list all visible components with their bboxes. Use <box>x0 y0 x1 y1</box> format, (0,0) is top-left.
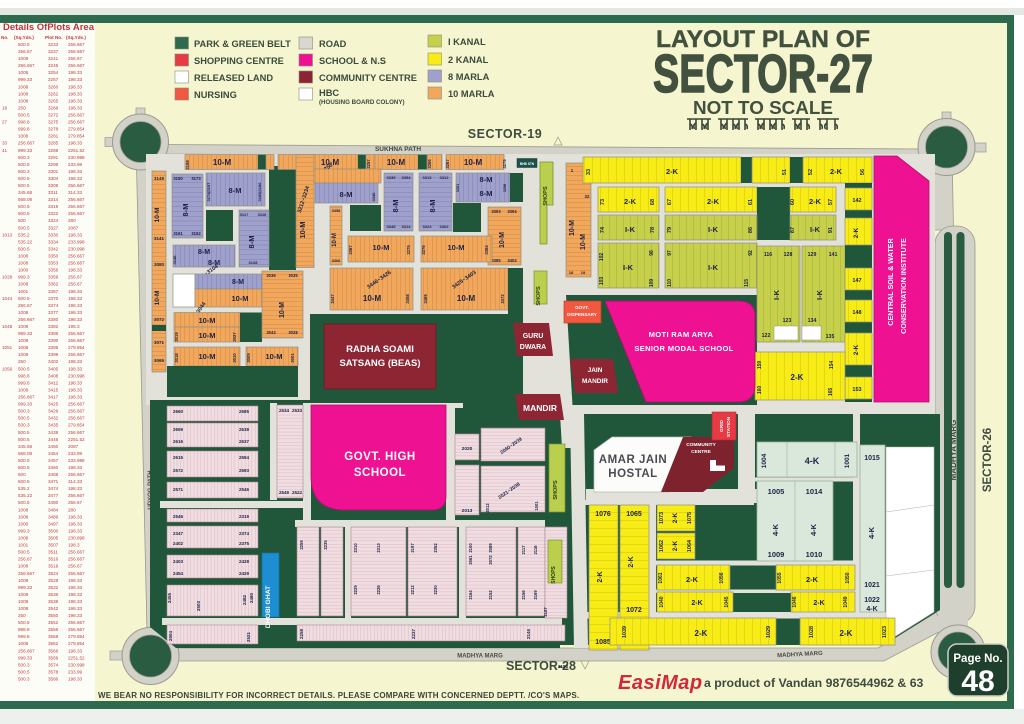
svg-text:10-M: 10-M <box>198 352 215 361</box>
svg-text:110: 110 <box>667 279 673 287</box>
svg-text:1039: 1039 <box>622 626 628 638</box>
svg-text:1076: 1076 <box>595 511 611 518</box>
svg-text:2455: 2455 <box>167 592 172 603</box>
svg-text:GOVT.: GOVT. <box>575 305 589 310</box>
svg-text:2100: 2100 <box>468 543 473 553</box>
svg-text:2482: 2482 <box>242 594 247 605</box>
svg-text:2117: 2117 <box>521 545 526 555</box>
svg-text:HBC: HBC <box>319 88 339 98</box>
svg-text:2-K: 2-K <box>791 373 804 382</box>
svg-text:74: 74 <box>600 226 606 233</box>
svg-text:2 KANAL: 2 KANAL <box>448 55 489 65</box>
svg-text:10-M: 10-M <box>372 243 389 252</box>
svg-text:1021: 1021 <box>864 582 880 589</box>
svg-text:2533: 2533 <box>292 408 303 413</box>
svg-text:3035: 3035 <box>288 273 298 278</box>
svg-text:3146: 3146 <box>172 255 177 265</box>
svg-text:1073: 1073 <box>659 512 665 524</box>
svg-text:COMMUNITY: COMMUNITY <box>686 442 716 448</box>
svg-text:87: 87 <box>790 227 796 233</box>
svg-text:2012: 2012 <box>485 503 490 513</box>
svg-text:MADHYA MARG: MADHYA MARG <box>949 420 958 481</box>
svg-text:2212: 2212 <box>410 585 415 595</box>
svg-text:8-M: 8-M <box>232 279 244 286</box>
svg-text:NOT TO SCALE: NOT TO SCALE <box>693 98 833 118</box>
svg-text:3345: 3345 <box>387 224 397 229</box>
svg-text:3162: 3162 <box>191 231 201 236</box>
svg-text:3358: 3358 <box>332 209 340 213</box>
svg-text:1040: 1040 <box>659 596 665 607</box>
svg-text:3027: 3027 <box>232 332 237 342</box>
svg-text:2313: 2313 <box>376 543 381 553</box>
svg-text:1072: 1072 <box>626 607 642 614</box>
svg-text:I-K: I-K <box>625 225 636 234</box>
svg-text:2403: 2403 <box>173 559 184 564</box>
svg-text:1001: 1001 <box>844 453 851 468</box>
svg-text:2546: 2546 <box>239 487 250 492</box>
svg-text:3458: 3458 <box>405 294 410 304</box>
svg-text:3065: 3065 <box>154 358 165 363</box>
svg-text:3298: 3298 <box>503 184 507 192</box>
svg-text:3080: 3080 <box>154 262 165 267</box>
svg-text:I KANAL: I KANAL <box>448 37 486 47</box>
svg-text:3312: 3312 <box>440 175 450 180</box>
svg-text:18: 18 <box>569 270 574 275</box>
svg-text:159: 159 <box>757 361 763 370</box>
svg-text:1010: 1010 <box>806 550 823 559</box>
svg-text:8-M: 8-M <box>181 204 190 217</box>
svg-text:WE BEAR NO RESPONSIBILITY FOR: WE BEAR NO RESPONSIBILITY FOR INCORRECT … <box>98 691 579 700</box>
svg-text:2504: 2504 <box>168 630 173 641</box>
svg-text:2310: 2310 <box>353 543 358 553</box>
svg-text:2237: 2237 <box>411 628 416 639</box>
svg-text:3266: 3266 <box>427 159 432 169</box>
svg-text:2-K: 2-K <box>624 197 637 206</box>
svg-text:3128: 3128 <box>249 260 259 265</box>
svg-text:2594: 2594 <box>239 455 250 460</box>
svg-text:3036: 3036 <box>266 273 276 278</box>
svg-text:DISPENSARY: DISPENSARY <box>567 312 597 317</box>
svg-text:60: 60 <box>790 199 796 205</box>
svg-text:SHOPS: SHOPS <box>553 480 559 500</box>
svg-text:10-M: 10-M <box>154 208 161 223</box>
svg-text:2169: 2169 <box>533 590 538 600</box>
svg-text:2659: 2659 <box>173 427 184 432</box>
svg-text:10-M: 10-M <box>298 221 307 238</box>
svg-text:73: 73 <box>600 199 606 205</box>
svg-text:2226: 2226 <box>376 585 381 595</box>
svg-text:10-M: 10-M <box>198 331 215 340</box>
svg-text:GRID: GRID <box>719 419 725 432</box>
svg-text:SCHOOL & N.S: SCHOOL & N.S <box>319 56 386 66</box>
svg-text:3009: 3009 <box>246 353 251 363</box>
svg-text:10-M: 10-M <box>387 158 406 167</box>
svg-text:3010: 3010 <box>232 353 237 363</box>
svg-text:3314: 3314 <box>402 224 412 229</box>
svg-text:I-K: I-K <box>810 225 821 234</box>
svg-text:8-M: 8-M <box>391 200 400 213</box>
svg-text:10-M: 10-M <box>279 302 286 318</box>
svg-text:8-M: 8-M <box>198 249 210 256</box>
svg-text:103: 103 <box>599 277 605 286</box>
svg-text:147: 147 <box>852 278 861 284</box>
svg-text:3393: 3393 <box>491 209 501 214</box>
svg-text:3018: 3018 <box>174 353 179 363</box>
svg-text:102: 102 <box>599 253 605 262</box>
svg-text:128: 128 <box>784 252 793 258</box>
svg-text:115: 115 <box>744 279 750 287</box>
svg-text:3323: 3323 <box>423 224 433 229</box>
svg-text:10-M: 10-M <box>457 294 476 303</box>
svg-text:3335: 3335 <box>387 175 397 180</box>
svg-text:3472: 3472 <box>500 294 505 304</box>
svg-text:2480: 2480 <box>249 592 254 603</box>
svg-text:1022: 1022 <box>864 597 880 604</box>
svg-text:(HOUSING BOARD COLONY): (HOUSING BOARD COLONY) <box>319 99 405 106</box>
svg-text:3019: 3019 <box>174 332 179 342</box>
svg-text:109: 109 <box>649 279 655 288</box>
svg-text:129: 129 <box>808 252 817 258</box>
svg-text:8-M: 8-M <box>480 189 493 198</box>
svg-text:3367: 3367 <box>348 245 353 255</box>
svg-text:33: 33 <box>586 169 592 175</box>
svg-text:SATSANG (BEAS): SATSANG (BEAS) <box>339 358 420 369</box>
svg-text:3072: 3072 <box>154 317 165 322</box>
svg-text:2685: 2685 <box>239 409 250 414</box>
svg-text:3354: 3354 <box>402 175 412 180</box>
svg-text:78: 78 <box>650 227 656 233</box>
svg-text:ROAD: ROAD <box>319 39 347 49</box>
svg-text:2-K: 2-K <box>628 556 635 567</box>
svg-text:98: 98 <box>649 250 655 256</box>
svg-text:CONSERVATION INSTITUTE: CONSERVATION INSTITUTE <box>899 238 908 334</box>
svg-text:2-K: 2-K <box>809 197 822 206</box>
svg-text:2197: 2197 <box>410 543 415 553</box>
svg-text:3141: 3141 <box>154 236 165 241</box>
svg-text:2229: 2229 <box>353 585 358 595</box>
svg-text:RELEASED LAND: RELEASED LAND <box>194 73 273 83</box>
svg-text:10-M: 10-M <box>213 158 232 167</box>
svg-text:67: 67 <box>667 199 673 205</box>
svg-text:1062: 1062 <box>659 540 665 552</box>
svg-text:2-K: 2-K <box>853 227 860 238</box>
svg-text:Details OfPlots Area: Details OfPlots Area <box>3 22 95 33</box>
svg-text:I-K: I-K <box>623 263 634 272</box>
svg-text:97: 97 <box>667 250 673 256</box>
svg-text:1075: 1075 <box>687 512 693 524</box>
svg-text:JAIN: JAIN <box>588 367 603 374</box>
svg-text:2152: 2152 <box>488 590 493 600</box>
svg-text:GURU: GURU <box>523 333 544 340</box>
svg-text:2352: 2352 <box>433 543 438 553</box>
svg-text:3028: 3028 <box>288 330 298 335</box>
svg-text:122: 122 <box>762 333 771 339</box>
svg-text:I-K: I-K <box>708 225 719 234</box>
svg-text:I-K: I-K <box>708 263 719 272</box>
svg-text:2454: 2454 <box>173 571 184 576</box>
svg-text:3161: 3161 <box>173 231 183 236</box>
svg-text:1014: 1014 <box>806 487 824 496</box>
svg-text:3001: 3001 <box>290 353 295 363</box>
svg-text:EasiMap: EasiMap <box>618 672 703 694</box>
svg-text:STATION: STATION <box>726 416 732 437</box>
svg-text:8-M: 8-M <box>340 190 353 199</box>
svg-text:10-M: 10-M <box>569 220 576 236</box>
svg-text:SCHOOL: SCHOOL <box>354 467 406 479</box>
svg-text:1015: 1015 <box>864 455 880 462</box>
svg-text:10-M: 10-M <box>580 234 587 250</box>
svg-text:2374: 2374 <box>239 531 250 536</box>
svg-text:Page No.: Page No. <box>953 653 1002 665</box>
svg-text:SUKHNA PATH: SUKHNA PATH <box>375 146 421 153</box>
svg-text:3174|3197: 3174|3197 <box>206 182 211 202</box>
svg-text:3257: 3257 <box>366 159 371 169</box>
svg-text:141: 141 <box>829 252 838 258</box>
svg-text:1049: 1049 <box>843 596 849 607</box>
svg-text:SHOPS: SHOPS <box>551 566 557 584</box>
svg-text:148: 148 <box>852 310 861 316</box>
svg-text:8-M: 8-M <box>480 175 493 184</box>
svg-text:BHB STN: BHB STN <box>520 162 535 166</box>
svg-text:3185|3186: 3185|3186 <box>257 182 262 202</box>
svg-text:SENIOR MODAL SCHOOL: SENIOR MODAL SCHOOL <box>634 344 733 353</box>
svg-text:2615: 2615 <box>173 455 184 460</box>
svg-text:2637: 2637 <box>239 439 250 444</box>
svg-text:116: 116 <box>764 252 772 258</box>
svg-text:10-M: 10-M <box>198 316 215 325</box>
svg-text:SHOPS: SHOPS <box>536 286 542 306</box>
svg-text:2571: 2571 <box>173 487 184 492</box>
svg-text:3117: 3117 <box>240 212 249 217</box>
svg-text:19: 19 <box>581 270 586 275</box>
svg-text:3385: 3385 <box>491 258 501 263</box>
svg-text:1061: 1061 <box>658 572 664 583</box>
svg-text:3301: 3301 <box>456 184 460 192</box>
svg-text:4-K: 4-K <box>809 523 818 536</box>
svg-text:COMMUNITY CENTRE: COMMUNITY CENTRE <box>319 73 417 83</box>
svg-text:2188: 2188 <box>558 664 569 669</box>
svg-text:2429: 2429 <box>239 571 250 576</box>
svg-text:10-M: 10-M <box>499 232 506 248</box>
svg-text:2146: 2146 <box>526 628 531 639</box>
svg-text:3313: 3313 <box>423 175 433 180</box>
svg-text:SECTOR-27: SECTOR-27 <box>653 44 873 104</box>
svg-text:79: 79 <box>667 227 673 233</box>
svg-text:2276: 2276 <box>421 245 426 255</box>
svg-text:2347: 2347 <box>173 531 184 536</box>
svg-text:2402: 2402 <box>173 541 184 546</box>
svg-text:AMAR JAIN: AMAR JAIN <box>599 454 667 466</box>
svg-text:2616: 2616 <box>173 439 184 444</box>
svg-text:3366: 3366 <box>332 259 340 263</box>
svg-text:2259: 2259 <box>299 540 304 550</box>
svg-text:CENTRE: CENTRE <box>691 449 712 455</box>
svg-text:2638: 2638 <box>239 427 250 432</box>
svg-text:2534: 2534 <box>279 408 290 413</box>
svg-text:CENTRAL SOIL & WATER: CENTRAL SOIL & WATER <box>886 237 895 325</box>
svg-text:SECTOR-19: SECTOR-19 <box>468 127 542 141</box>
svg-text:I-K: I-K <box>815 289 824 300</box>
svg-text:2546: 2546 <box>173 514 184 519</box>
svg-text:1045: 1045 <box>724 596 730 607</box>
svg-text:10-M: 10-M <box>464 158 483 167</box>
svg-text:2522: 2522 <box>292 490 303 495</box>
svg-text:2-K: 2-K <box>666 167 679 176</box>
svg-text:56: 56 <box>860 169 866 175</box>
svg-text:10-M: 10-M <box>154 291 161 306</box>
svg-text:2164: 2164 <box>468 590 473 600</box>
svg-text:2-K: 2-K <box>597 571 604 582</box>
svg-text:SHOPPING CENTRE: SHOPPING CENTRE <box>194 56 284 66</box>
svg-text:153: 153 <box>852 387 861 393</box>
svg-text:10-M: 10-M <box>332 233 338 247</box>
svg-text:2013: 2013 <box>462 508 473 514</box>
svg-text:3043: 3043 <box>266 330 276 335</box>
svg-text:8-M: 8-M <box>229 186 242 195</box>
svg-text:2549: 2549 <box>279 490 290 495</box>
svg-text:142: 142 <box>852 198 861 204</box>
svg-text:154: 154 <box>829 361 835 370</box>
svg-text:10 MARLA: 10 MARLA <box>448 89 495 99</box>
svg-text:NURSING: NURSING <box>194 90 237 100</box>
svg-text:3384: 3384 <box>484 245 489 255</box>
svg-text:4-K: 4-K <box>771 523 780 536</box>
svg-text:2187: 2187 <box>543 607 548 617</box>
svg-text:123: 123 <box>783 318 792 324</box>
svg-text:2-K: 2-K <box>840 629 853 638</box>
svg-text:2-K: 2-K <box>672 512 679 523</box>
svg-text:165: 165 <box>828 388 834 397</box>
svg-text:GOVT. HIGH: GOVT. HIGH <box>344 451 415 463</box>
svg-text:3447: 3447 <box>330 294 335 304</box>
svg-text:1055: 1055 <box>777 572 783 583</box>
svg-text:MOTI RAM ARYA: MOTI RAM ARYA <box>649 330 714 339</box>
svg-text:2-K: 2-K <box>695 629 708 638</box>
svg-text:3116: 3116 <box>258 212 267 217</box>
svg-text:DHOBI GHAT: DHOBI GHAT <box>265 585 272 628</box>
svg-text:4-K: 4-K <box>867 526 876 539</box>
svg-text:135: 135 <box>826 334 835 340</box>
svg-text:3302: 3302 <box>440 224 450 229</box>
svg-text:1009: 1009 <box>768 550 785 559</box>
svg-text:HOSTAL: HOSTAL <box>608 468 657 480</box>
svg-text:MANDIR: MANDIR <box>582 378 608 385</box>
svg-text:2156: 2156 <box>521 590 526 600</box>
svg-text:4-K: 4-K <box>805 456 820 466</box>
svg-text:2116: 2116 <box>533 545 538 555</box>
svg-text:8-M: 8-M <box>247 236 256 249</box>
svg-text:1004: 1004 <box>761 453 768 468</box>
svg-text:2072: 2072 <box>488 555 493 565</box>
svg-text:1029: 1029 <box>766 626 772 638</box>
svg-text:48: 48 <box>961 665 994 698</box>
svg-text:61: 61 <box>748 199 754 205</box>
svg-text:2235: 2235 <box>323 540 328 550</box>
svg-text:3267: 3267 <box>445 159 450 169</box>
svg-text:2-K: 2-K <box>672 540 679 551</box>
svg-text:2-K: 2-K <box>830 167 843 176</box>
svg-text:3150: 3150 <box>173 176 183 181</box>
svg-text:3394: 3394 <box>507 209 517 214</box>
svg-text:52: 52 <box>808 169 814 175</box>
svg-text:160: 160 <box>757 386 763 395</box>
svg-text:1065: 1065 <box>626 511 642 518</box>
svg-text:1085: 1085 <box>595 639 611 646</box>
svg-text:68: 68 <box>650 199 656 205</box>
svg-text:2258: 2258 <box>299 628 304 639</box>
svg-text:3346: 3346 <box>371 192 376 202</box>
svg-text:4-K: 4-K <box>866 606 877 613</box>
svg-text:2-K: 2-K <box>813 600 824 607</box>
svg-text:MANDIR: MANDIR <box>523 403 557 413</box>
svg-text:DWARA: DWARA <box>520 344 546 351</box>
svg-text:1050: 1050 <box>845 572 851 583</box>
svg-text:10-M: 10-M <box>363 294 382 303</box>
svg-text:10-M: 10-M <box>265 352 282 361</box>
svg-text:a product of Vandan 9876544962: a product of Vandan 9876544962 & 63 <box>704 676 924 690</box>
svg-text:8 MARLA: 8 MARLA <box>448 72 490 82</box>
svg-text:2230: 2230 <box>433 585 438 595</box>
svg-text:MADHYA MARG: MADHYA MARG <box>457 654 503 660</box>
svg-text:3071: 3071 <box>154 340 165 345</box>
svg-text:1023: 1023 <box>882 626 888 638</box>
svg-text:2089: 2089 <box>488 543 493 553</box>
svg-text:2020: 2020 <box>462 446 473 452</box>
svg-text:91: 91 <box>828 227 834 233</box>
svg-text:1064: 1064 <box>687 539 693 552</box>
svg-text:1005: 1005 <box>768 487 785 496</box>
svg-text:1001: 1001 <box>534 501 539 511</box>
svg-text:2572: 2572 <box>173 468 184 473</box>
svg-text:SHOPS: SHOPS <box>543 186 549 206</box>
svg-text:3198: 3198 <box>185 160 190 170</box>
svg-text:3375: 3375 <box>406 245 411 255</box>
svg-text:2-K: 2-K <box>853 344 860 355</box>
svg-text:323332373241324632543257326032: 3233323732413246325432573260326232653268… <box>48 42 59 682</box>
svg-text:57: 57 <box>828 199 834 205</box>
svg-text:51: 51 <box>782 169 788 175</box>
svg-text:134: 134 <box>808 318 817 324</box>
svg-text:I-K: I-K <box>772 289 781 300</box>
svg-text:2660: 2660 <box>173 409 184 414</box>
svg-text:SECTOR-26: SECTOR-26 <box>982 428 994 492</box>
svg-text:2-K: 2-K <box>806 575 819 584</box>
svg-text:10-M: 10-M <box>447 243 464 252</box>
svg-text:1056: 1056 <box>719 572 725 583</box>
svg-text:3279: 3279 <box>502 159 507 169</box>
svg-text:32: 32 <box>584 194 590 199</box>
svg-text:1046: 1046 <box>792 596 798 607</box>
svg-text:2-K: 2-K <box>707 197 720 206</box>
svg-text:2593: 2593 <box>239 468 250 473</box>
svg-text:2503: 2503 <box>196 600 201 611</box>
svg-text:2428: 2428 <box>239 559 250 564</box>
svg-text:2061: 2061 <box>468 555 473 565</box>
svg-text:92: 92 <box>748 250 754 256</box>
svg-text:3173: 3173 <box>191 176 201 181</box>
svg-text:2521: 2521 <box>246 631 251 642</box>
svg-text:3402: 3402 <box>507 258 517 263</box>
svg-text:86: 86 <box>748 227 754 233</box>
svg-text:2375: 2375 <box>239 541 250 546</box>
svg-text:8-M: 8-M <box>428 200 437 213</box>
svg-text:PARK & GREEN BELT: PARK & GREEN BELT <box>194 39 291 49</box>
svg-text:2319: 2319 <box>239 514 250 519</box>
svg-text:2-K: 2-K <box>691 600 702 607</box>
svg-text:3149: 3149 <box>154 176 165 181</box>
svg-text:RADHA SOAMI: RADHA SOAMI <box>346 344 414 355</box>
svg-text:2-K: 2-K <box>686 575 699 584</box>
